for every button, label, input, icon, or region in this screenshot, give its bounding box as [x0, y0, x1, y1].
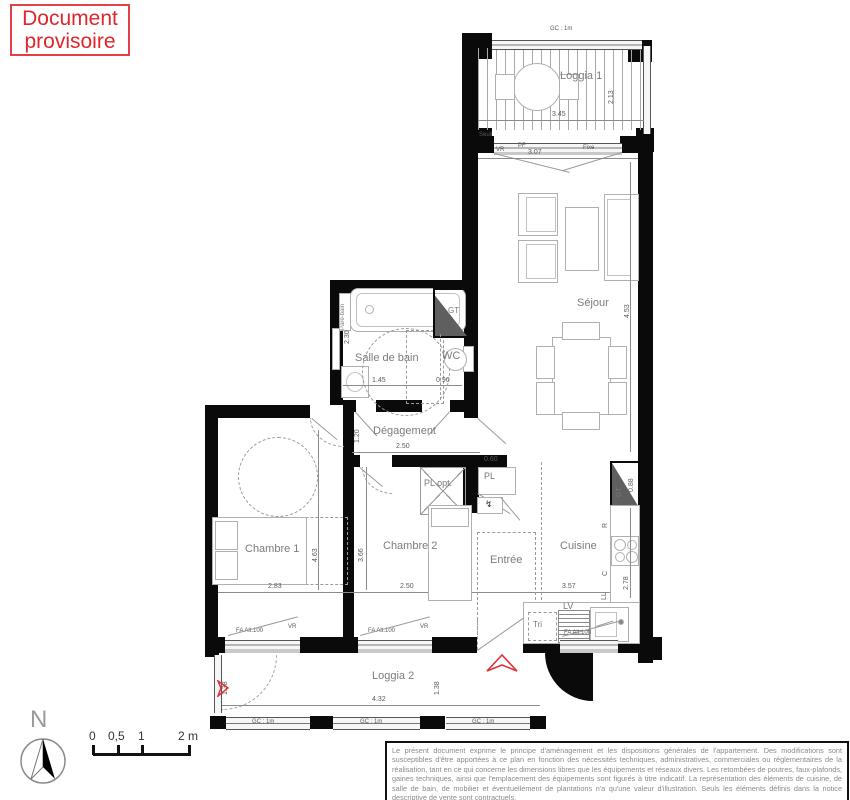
fridge-label: R: [602, 523, 609, 528]
guardrail-label: GC : 1m: [472, 719, 494, 725]
closet-label: PL: [484, 471, 495, 481]
partition-dashed: [440, 334, 441, 400]
dim-line: [630, 508, 631, 598]
turning-circle: [238, 437, 318, 517]
room-label-degagement: Dégagement: [373, 425, 436, 437]
electrical-panel-icon: ↯: [485, 499, 493, 510]
chair: [562, 412, 600, 430]
door-swing: [222, 655, 277, 710]
guardrail-label: GC : 1m: [360, 719, 382, 725]
wall: [638, 637, 662, 660]
room-label-sejour: Séjour: [577, 297, 609, 309]
chair: [562, 322, 600, 340]
dim-chambre2-height: 3.66: [358, 548, 365, 562]
dining-table: [552, 337, 611, 415]
dim-loggia2-width: 4.32: [372, 696, 386, 703]
room-label-sdb: Salle de bain: [355, 352, 419, 364]
armchair: [518, 193, 558, 236]
room-label-entree: Entrée: [490, 554, 522, 566]
room-label-wc: WC: [442, 350, 460, 362]
dim-line: [478, 158, 638, 159]
roller-shutter-label: VR: [288, 624, 296, 630]
railing-post: [420, 716, 445, 729]
scale-tick: [92, 745, 95, 755]
scale-label-0: 0: [89, 729, 96, 743]
dim-wc-width: 0.96: [436, 377, 450, 384]
scale-tick: [117, 745, 120, 755]
window-sill: [560, 649, 618, 653]
access-arrow-icon: [217, 680, 229, 697]
dim-duct-height: 0.88: [628, 478, 635, 492]
pillow: [215, 551, 238, 580]
fixed-pane-label: Fixe: [583, 145, 594, 151]
dim-chambre1-width: 2.83: [268, 583, 282, 590]
guardrail-label: GC : 1m: [550, 26, 572, 32]
duct-label: GT: [616, 487, 623, 497]
curved-wall: [545, 653, 593, 701]
wall: [450, 400, 464, 412]
wall: [432, 637, 477, 653]
dim-loggia1-width: 3.45: [552, 111, 566, 118]
chair: [495, 74, 515, 100]
wall: [638, 140, 653, 663]
scale-label-05: 0,5: [108, 729, 125, 743]
loggia1-guardrail: [492, 40, 642, 50]
room-label-chambre1: Chambre 1: [245, 543, 299, 555]
dim-sdb-width: 1.45: [372, 377, 386, 384]
sofa: [604, 194, 639, 281]
railing-post: [310, 716, 333, 729]
loggia1-guardrail-right: [643, 46, 651, 134]
dim-degagement-height: 1.20: [354, 429, 361, 443]
dim-loggia1-depth: 2.13: [608, 90, 615, 104]
duct-label: GT: [448, 306, 459, 315]
dim-loggia2-depth: 1.38: [434, 681, 441, 695]
dim-line: [366, 467, 367, 590]
chair: [608, 382, 627, 415]
coffee-table: [565, 207, 599, 271]
bath-screen-label: Pare-bain: [340, 304, 346, 330]
floor-plan-page: Document provisoire GC : 1m Loggia 1 3.4…: [0, 0, 850, 800]
wall: [300, 637, 358, 653]
armchair: [518, 240, 558, 283]
door-opening: [310, 405, 343, 418]
sink: [590, 607, 629, 642]
dim-chambre2-width: 2.50: [400, 583, 414, 590]
hob: [611, 536, 639, 566]
door-leaf: [477, 418, 506, 444]
north-label: N: [30, 706, 47, 734]
scale-tick: [141, 745, 144, 755]
hob-label: C: [602, 571, 609, 576]
dim-line: [343, 385, 462, 386]
room-label-chambre2: Chambre 2: [383, 540, 437, 552]
dim-closet-width: 0.60: [484, 456, 498, 463]
wall: [205, 405, 310, 418]
door-swing: [310, 418, 344, 447]
dim-line: [318, 430, 319, 590]
dim-chambre1-height: 4.63: [312, 548, 319, 562]
room-label-cuisine: Cuisine: [560, 540, 597, 552]
scale-tick: [188, 745, 191, 755]
chair: [608, 346, 627, 379]
legal-disclaimer: Le présent document exprime le principe …: [385, 741, 849, 800]
roller-shutter-label: VR: [496, 147, 504, 153]
wall: [462, 33, 478, 293]
dim-line: [478, 120, 644, 121]
scale-label-1: 1: [138, 729, 145, 743]
chair: [536, 346, 555, 379]
wall: [478, 136, 494, 153]
chair: [536, 382, 555, 415]
dim-cuisine-height: 2.78: [623, 576, 630, 590]
dim-sejour-window: 3.07: [528, 149, 542, 156]
french-door-label: PF: [518, 143, 526, 149]
railing-post: [530, 716, 546, 729]
optional-shower-zone: [406, 330, 444, 404]
dim-line: [222, 705, 540, 706]
waste-sorting-label: Tri: [533, 620, 542, 629]
dim-cuisine-width: 3.57: [562, 583, 576, 590]
pillow: [215, 521, 238, 550]
round-table: [513, 63, 561, 111]
room-label-loggia1: Loggia 1: [560, 70, 602, 82]
window-sill: [358, 649, 432, 653]
pillow: [431, 508, 469, 527]
technical-duct: [610, 461, 644, 507]
window-sill: [225, 649, 300, 653]
wall: [343, 455, 360, 467]
dim-sejour-height: 4.53: [624, 304, 631, 318]
closet-optional-label: PL opt.: [424, 478, 452, 488]
scale-label-2m: 2 m: [178, 729, 198, 743]
entrance-arrow-icon: [486, 654, 518, 672]
guardrail-label: GC : 1m: [252, 719, 274, 725]
wall: [620, 136, 638, 153]
dim-sdb-height: 2.30: [344, 330, 351, 344]
threshold-label: Seuil: [479, 132, 492, 138]
dim-degagement-width: 2.50: [396, 443, 410, 450]
roller-shutter-label: VR: [420, 624, 428, 630]
radiator: [332, 328, 340, 370]
window-sill: [494, 152, 622, 155]
dishwasher: [558, 610, 590, 643]
door-swing: [477, 620, 478, 650]
compass-icon: [18, 736, 68, 786]
door-opening: [360, 455, 392, 467]
provisional-document-badge: Document provisoire: [10, 4, 130, 56]
dishwasher-label: LV: [563, 601, 573, 611]
room-label-loggia2: Loggia 2: [372, 670, 414, 682]
dim-line: [352, 452, 480, 453]
railing-post: [210, 716, 226, 729]
washer-label: LL: [601, 592, 608, 600]
